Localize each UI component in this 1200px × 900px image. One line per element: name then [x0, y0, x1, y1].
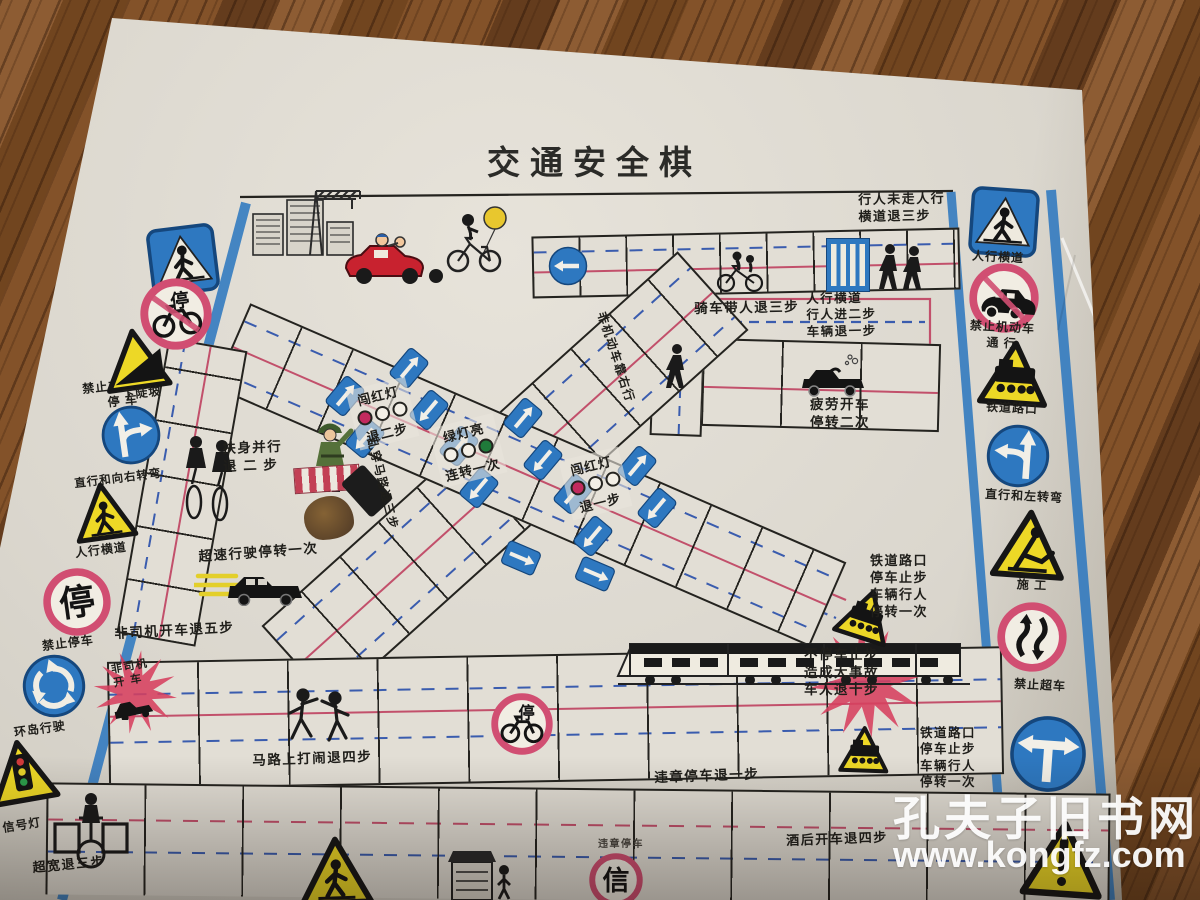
board-annotation: 酒后开车退四步: [786, 829, 888, 849]
light-bulb: [586, 474, 604, 492]
board-annotation: 扶身并行退 二 步: [222, 438, 283, 475]
walking-person-icon: [660, 342, 694, 394]
board-annotation: 疲劳开车停转二次: [810, 396, 870, 431]
light-bulb: [569, 479, 587, 497]
page-title: 交通安全棋: [487, 136, 702, 184]
sleepy-car-icon: [792, 350, 872, 398]
light-bulb: [476, 437, 494, 455]
pedestrians-icon: [874, 242, 930, 294]
fighting-people-icon: [284, 686, 356, 744]
sign-label: 直行和左转弯: [985, 487, 1064, 507]
sign-label: 施 工: [1016, 577, 1047, 594]
arrow-tile-icon: [573, 555, 616, 593]
speeding-car-icon: [194, 558, 309, 606]
board-annotation: 违章停车退一步: [654, 765, 760, 786]
game-board-paper: 交通安全棋 人行横道停禁止非机动车停 车下陡坡直行和向右转弯人行横道停禁止停车环…: [0, 0, 1200, 900]
svg-text:信: 信: [603, 866, 630, 896]
board-annotation: 行人未走人行横道退三步: [858, 190, 946, 225]
traffic-sign-roundabout: [17, 649, 92, 724]
traffic-sign-straight-left: [983, 421, 1053, 491]
board-surface: 交通安全棋 人行横道停禁止非机动车停 车下陡坡直行和向右转弯人行横道停禁止停车环…: [0, 0, 1200, 900]
traffic-sign-worker: [990, 506, 1069, 585]
traffic-sign-xin-char: 信: [589, 853, 643, 900]
sign-label: 禁止超车: [1014, 677, 1067, 695]
board-annotation: 不停车止步造成大事故车人退十步: [804, 646, 879, 699]
traffic-sign-stop-char: 停: [39, 564, 116, 641]
traffic-sign-straight-right: [96, 400, 166, 470]
traffic-sign-train: [838, 724, 890, 776]
board-annotation: 骑车带人退三步: [694, 298, 799, 317]
svg-text:停: 停: [57, 580, 98, 625]
traffic-sign-bike: 停: [491, 693, 553, 755]
traffic-sign-crosswalk-warn: [69, 477, 139, 547]
cyclist-with-passenger-icon: [712, 246, 768, 294]
light-bulb: [459, 441, 477, 459]
light-bulb: [356, 409, 374, 427]
light-bulb: [441, 446, 459, 464]
photo-of-game-board: 交通安全棋 人行横道停禁止非机动车停 车下陡坡直行和向右转弯人行横道停禁止停车环…: [0, 0, 1200, 900]
kid-bike-icon: [438, 198, 516, 276]
crosswalk-cell-icon: [826, 238, 870, 292]
start-arrow-icon: [548, 246, 588, 286]
svg-text:停: 停: [519, 704, 535, 723]
light-bulb: [604, 470, 622, 488]
arrow-tile-icon: [499, 539, 542, 577]
kiosk-icon: [446, 848, 514, 900]
sign-label: 信号灯: [2, 815, 43, 837]
light-bulb: [391, 400, 409, 418]
board-annotation: 违章停车: [598, 838, 644, 851]
train-icon: [610, 634, 974, 688]
paper-stain: [304, 496, 354, 540]
board-annotation: 铁道路口停车止步车辆行人停转一次: [870, 553, 928, 621]
traffic-sign-crosswalk-warn: [298, 834, 375, 900]
watermark-site-url: www.kongfz.com: [893, 834, 1186, 876]
crash-car-icon: [110, 694, 158, 720]
light-bulb: [373, 404, 391, 422]
sign-label: 铁道路口: [986, 400, 1039, 418]
board-annotation: 人行横道行人进二步车辆退一步: [806, 290, 877, 340]
traffic-sign-overtake: [995, 600, 1070, 675]
traffic-sign-signal: [0, 733, 61, 812]
